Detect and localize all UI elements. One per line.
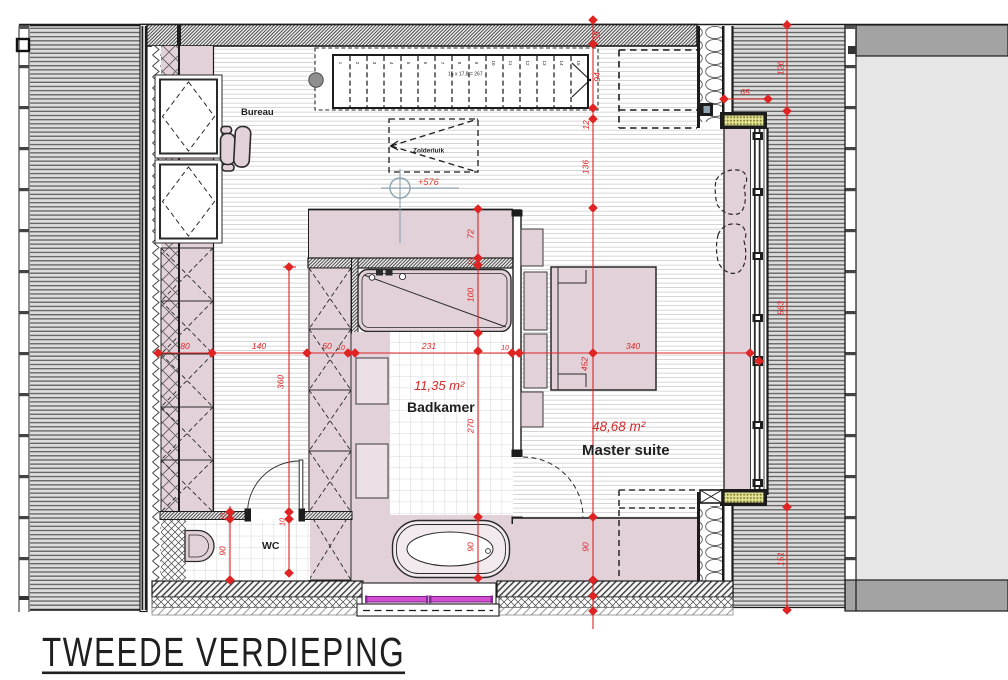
svg-text:WC: WC bbox=[262, 540, 280, 552]
svg-text:60: 60 bbox=[322, 341, 332, 351]
svg-text:13: 13 bbox=[542, 60, 547, 66]
svg-text:10: 10 bbox=[469, 258, 476, 266]
svg-text:140: 140 bbox=[252, 341, 266, 351]
svg-text:10: 10 bbox=[491, 60, 496, 66]
svg-text:Master suite: Master suite bbox=[582, 442, 670, 459]
svg-text:48,68 m²: 48,68 m² bbox=[592, 419, 646, 434]
svg-text:231: 231 bbox=[421, 341, 436, 351]
svg-text:12: 12 bbox=[525, 60, 530, 66]
svg-text:TWEEDE VERDIEPING: TWEEDE VERDIEPING bbox=[42, 629, 405, 675]
svg-text:14: 14 bbox=[559, 60, 564, 66]
svg-text:340: 340 bbox=[626, 341, 640, 351]
svg-text:65: 65 bbox=[740, 87, 750, 97]
svg-text:151: 151 bbox=[776, 552, 786, 566]
svg-text:Badkamer: Badkamer bbox=[407, 399, 475, 415]
svg-text:+576: +576 bbox=[418, 177, 440, 187]
svg-text:15: 15 bbox=[576, 60, 581, 66]
svg-text:10: 10 bbox=[337, 345, 345, 352]
svg-text:583: 583 bbox=[776, 301, 786, 315]
svg-text:126: 126 bbox=[776, 61, 786, 75]
svg-text:11,35 m²: 11,35 m² bbox=[414, 378, 465, 393]
svg-text:94: 94 bbox=[592, 72, 602, 82]
svg-text:10: 10 bbox=[280, 518, 287, 526]
svg-text:136: 136 bbox=[581, 160, 591, 174]
svg-text:12: 12 bbox=[581, 120, 591, 130]
svg-text:Bureau: Bureau bbox=[241, 107, 274, 118]
svg-text:90: 90 bbox=[466, 542, 476, 552]
svg-text:38: 38 bbox=[592, 31, 602, 41]
svg-text:80: 80 bbox=[180, 341, 190, 351]
svg-text:10: 10 bbox=[221, 513, 228, 521]
svg-text:90: 90 bbox=[581, 542, 591, 552]
svg-text:15 x 17,8 = 267: 15 x 17,8 = 267 bbox=[448, 72, 483, 78]
svg-text:452: 452 bbox=[580, 357, 590, 371]
svg-text:72: 72 bbox=[466, 229, 476, 239]
svg-text:360: 360 bbox=[276, 375, 286, 389]
svg-text:100: 100 bbox=[466, 288, 476, 302]
svg-text:Zolderluik: Zolderluik bbox=[413, 148, 444, 155]
svg-text:11: 11 bbox=[508, 61, 513, 66]
svg-text:270: 270 bbox=[466, 419, 476, 434]
svg-text:10: 10 bbox=[501, 345, 509, 352]
svg-text:90: 90 bbox=[218, 546, 228, 556]
